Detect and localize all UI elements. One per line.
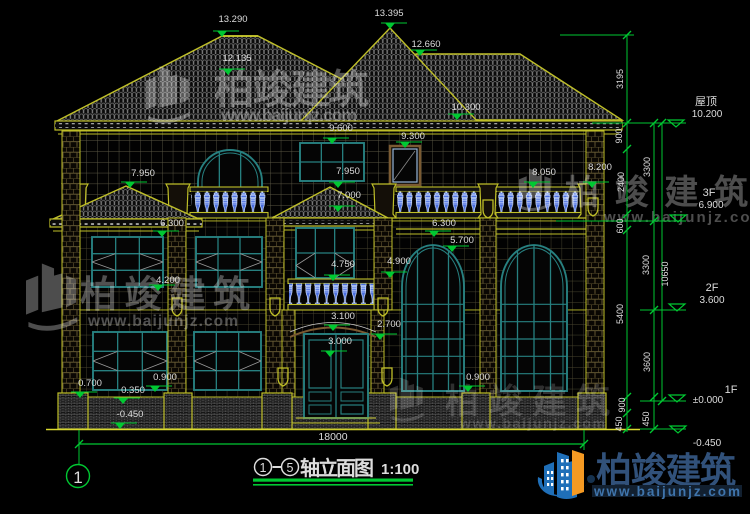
svg-text:0.700: 0.700 bbox=[78, 378, 102, 389]
svg-text:10.200: 10.200 bbox=[692, 109, 723, 120]
svg-text:3.100: 3.100 bbox=[331, 311, 355, 322]
svg-text:3.000: 3.000 bbox=[328, 336, 352, 347]
svg-text:0.350: 0.350 bbox=[121, 385, 145, 396]
svg-text:12.135: 12.135 bbox=[222, 53, 251, 64]
svg-text:-0.450: -0.450 bbox=[693, 438, 722, 449]
svg-text:18000: 18000 bbox=[318, 431, 347, 443]
svg-text:450: 450 bbox=[614, 416, 624, 431]
svg-text:8.200: 8.200 bbox=[588, 162, 612, 173]
svg-text:6.300: 6.300 bbox=[432, 218, 456, 229]
svg-text:3600: 3600 bbox=[642, 352, 652, 372]
svg-text:5: 5 bbox=[287, 461, 294, 475]
svg-text:12.660: 12.660 bbox=[411, 39, 440, 50]
svg-text:-0.450: -0.450 bbox=[117, 409, 144, 420]
svg-text:3.600: 3.600 bbox=[699, 295, 724, 306]
svg-text:4.200: 4.200 bbox=[156, 275, 180, 286]
svg-text:5400: 5400 bbox=[615, 304, 625, 324]
svg-text:0.900: 0.900 bbox=[153, 372, 177, 383]
svg-text:1:100: 1:100 bbox=[381, 461, 419, 478]
svg-text:9.600: 9.600 bbox=[329, 123, 353, 134]
svg-text:3F: 3F bbox=[703, 187, 716, 199]
svg-text:3300: 3300 bbox=[642, 157, 652, 177]
svg-text:13.290: 13.290 bbox=[218, 14, 247, 25]
svg-text:6.900: 6.900 bbox=[698, 200, 723, 211]
svg-text:1: 1 bbox=[260, 461, 267, 475]
svg-text:600: 600 bbox=[615, 218, 625, 233]
svg-text:10650: 10650 bbox=[660, 261, 670, 286]
svg-text:8.050: 8.050 bbox=[532, 167, 556, 178]
svg-text:4.900: 4.900 bbox=[387, 256, 411, 267]
svg-text:www.baijunjz.com: www.baijunjz.com bbox=[220, 105, 357, 125]
svg-text:13.395: 13.395 bbox=[374, 8, 403, 19]
svg-text:2400: 2400 bbox=[616, 172, 626, 192]
svg-text:4.750: 4.750 bbox=[331, 259, 355, 270]
svg-text:±0.000: ±0.000 bbox=[693, 395, 724, 406]
svg-text:10.300: 10.300 bbox=[451, 102, 480, 113]
svg-text:7.000: 7.000 bbox=[337, 190, 361, 201]
svg-text:9.300: 9.300 bbox=[401, 131, 425, 142]
svg-text:1: 1 bbox=[73, 468, 82, 487]
svg-text:7.950: 7.950 bbox=[131, 168, 155, 179]
svg-text:2.700: 2.700 bbox=[377, 319, 401, 330]
svg-text:900: 900 bbox=[614, 128, 624, 143]
svg-text:900: 900 bbox=[617, 397, 627, 412]
svg-text:6.300: 6.300 bbox=[160, 218, 184, 229]
svg-text:7.950: 7.950 bbox=[336, 166, 360, 177]
svg-text:450: 450 bbox=[641, 411, 651, 426]
svg-text:www.baijunjz.com: www.baijunjz.com bbox=[87, 313, 238, 330]
svg-text:5.700: 5.700 bbox=[450, 235, 474, 246]
svg-text:2F: 2F bbox=[706, 282, 719, 294]
svg-text:屋顶: 屋顶 bbox=[695, 95, 717, 108]
svg-text:1F: 1F bbox=[725, 384, 738, 396]
svg-text:3195: 3195 bbox=[615, 69, 625, 89]
svg-text:0.900: 0.900 bbox=[466, 372, 490, 383]
svg-text:3300: 3300 bbox=[641, 255, 651, 275]
svg-text:轴立面图: 轴立面图 bbox=[300, 456, 374, 480]
